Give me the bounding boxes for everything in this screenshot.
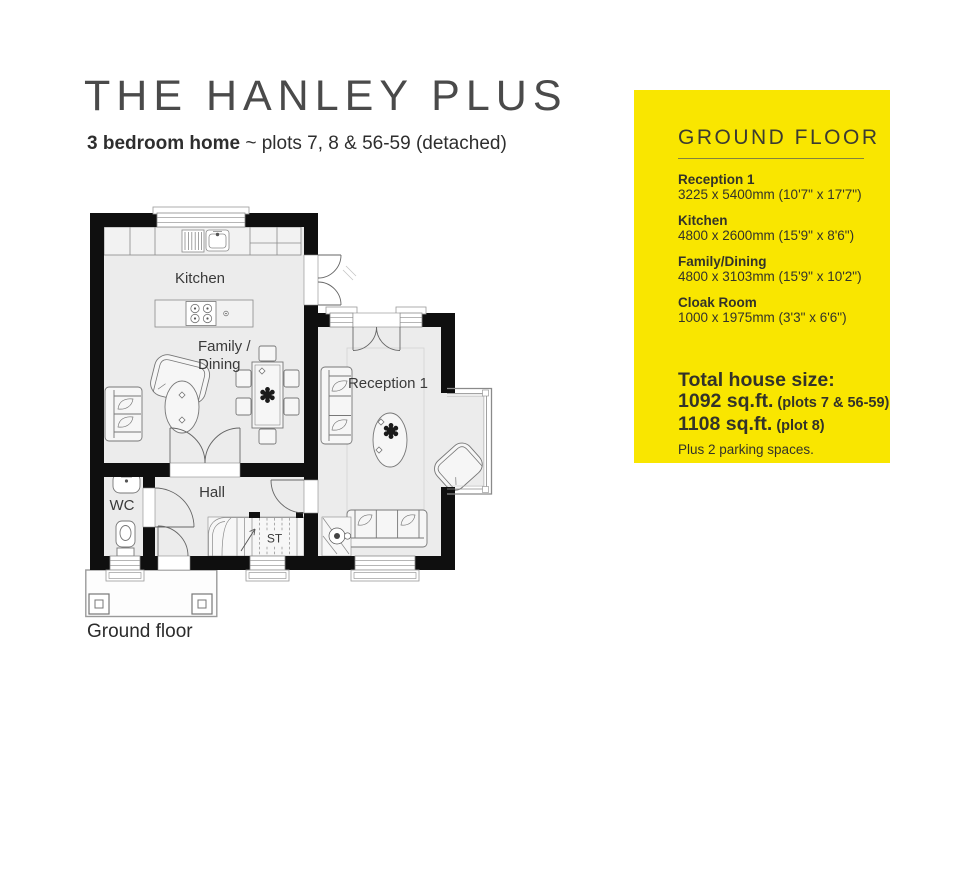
porch-column-right bbox=[192, 594, 212, 614]
porch bbox=[86, 570, 217, 617]
room-entry-name: Cloak Room bbox=[678, 295, 870, 310]
french-doors-kitchen bbox=[304, 255, 356, 305]
total-house-size-block: Total house size: 1092 sq.ft.(plots 7 & … bbox=[678, 370, 870, 457]
dining-chair bbox=[259, 429, 276, 444]
hall-label: Hall bbox=[199, 484, 225, 501]
total-size-2-note: (plot 8) bbox=[776, 418, 824, 434]
room-entry-name: Reception 1 bbox=[678, 172, 870, 187]
room-entry-dims: 3225 x 5400mm (10'7" x 17'7") bbox=[678, 187, 870, 203]
panel-heading: GROUND FLOOR bbox=[678, 126, 870, 150]
total-size-line-2: 1108 sq.ft.(plot 8) bbox=[678, 414, 870, 437]
room-dimensions-list: Reception 1 3225 x 5400mm (10'7" x 17'7"… bbox=[678, 172, 870, 326]
room-entry-dims: 1000 x 1975mm (3'3" x 6'6") bbox=[678, 310, 870, 326]
side-table-family bbox=[165, 381, 199, 433]
dining-chair bbox=[259, 346, 276, 361]
reception-window-right bbox=[396, 307, 426, 327]
room-entry-name: Kitchen bbox=[678, 213, 870, 228]
coffee-table-reception bbox=[373, 413, 407, 467]
room-entry-dims: 4800 x 3103mm (15'9" x 10'2") bbox=[678, 269, 870, 285]
floor-plan-svg: Kitchen Family / Dining Reception 1 Hall… bbox=[85, 200, 510, 632]
total-size-2: 1108 sq.ft. bbox=[678, 413, 772, 435]
st-label: ST bbox=[267, 532, 283, 546]
page-title: THE HANLEY PLUS bbox=[84, 72, 568, 121]
kitchen-window bbox=[153, 207, 249, 227]
total-size-1: 1092 sq.ft. bbox=[678, 390, 773, 412]
total-size-1-note: (plots 7 & 56-59) bbox=[777, 395, 889, 411]
subtitle-rest: ~ plots 7, 8 & 56-59 (detached) bbox=[240, 133, 507, 154]
kitchen-drainer bbox=[182, 230, 204, 252]
panel-heading-rule bbox=[678, 158, 864, 159]
kitchen-sink bbox=[206, 230, 229, 251]
total-size-line-1: 1092 sq.ft.(plots 7 & 56-59) bbox=[678, 391, 870, 414]
exterior-step-hatch bbox=[343, 266, 356, 280]
dining-chair bbox=[236, 398, 251, 415]
room-entry: Cloak Room 1000 x 1975mm (3'3" x 6'6") bbox=[678, 295, 870, 326]
ground-floor-caption: Ground floor bbox=[87, 621, 193, 643]
wc-window bbox=[106, 556, 144, 581]
dining-chair bbox=[284, 398, 299, 415]
room-entry-name: Family/Dining bbox=[678, 254, 870, 269]
reception-bottom-window bbox=[351, 556, 419, 581]
page-subtitle: 3 bedroom home ~ plots 7, 8 & 56-59 (det… bbox=[87, 133, 507, 155]
room-entry: Kitchen 4800 x 2600mm (15'9" x 8'6") bbox=[678, 213, 870, 244]
sofa-family bbox=[105, 387, 142, 441]
room-entry: Family/Dining 4800 x 3103mm (15'9" x 10'… bbox=[678, 254, 870, 285]
family-label-line2: Dining bbox=[198, 356, 241, 373]
stairs-window bbox=[246, 556, 289, 581]
kitchen-label: Kitchen bbox=[175, 270, 225, 287]
total-house-size-label: Total house size: bbox=[678, 370, 870, 391]
stairs bbox=[208, 517, 304, 556]
dining-chair bbox=[284, 370, 299, 387]
kitchen-counter bbox=[104, 227, 301, 255]
wc-toilet bbox=[116, 521, 135, 556]
ground-floor-panel: GROUND FLOOR Reception 1 3225 x 5400mm (… bbox=[634, 90, 890, 463]
porch-column-left bbox=[89, 594, 109, 614]
wc-label: WC bbox=[110, 497, 135, 514]
page-root: THE HANLEY PLUS 3 bedroom home ~ plots 7… bbox=[0, 0, 980, 876]
sofa-reception-bottom bbox=[347, 510, 427, 547]
parking-note: Plus 2 parking spaces. bbox=[678, 442, 870, 457]
floor-plan-figure: Kitchen Family / Dining Reception 1 Hall… bbox=[85, 200, 510, 632]
utility-meter bbox=[322, 517, 351, 556]
reception-window-left bbox=[326, 307, 357, 327]
room-entry: Reception 1 3225 x 5400mm (10'7" x 17'7"… bbox=[678, 172, 870, 203]
subtitle-bold: 3 bedroom home bbox=[87, 133, 240, 154]
kitchen-island bbox=[155, 300, 253, 327]
reception-label: Reception 1 bbox=[348, 375, 428, 392]
family-label-line1: Family / bbox=[198, 338, 251, 355]
room-entry-dims: 4800 x 2600mm (15'9" x 8'6") bbox=[678, 228, 870, 244]
